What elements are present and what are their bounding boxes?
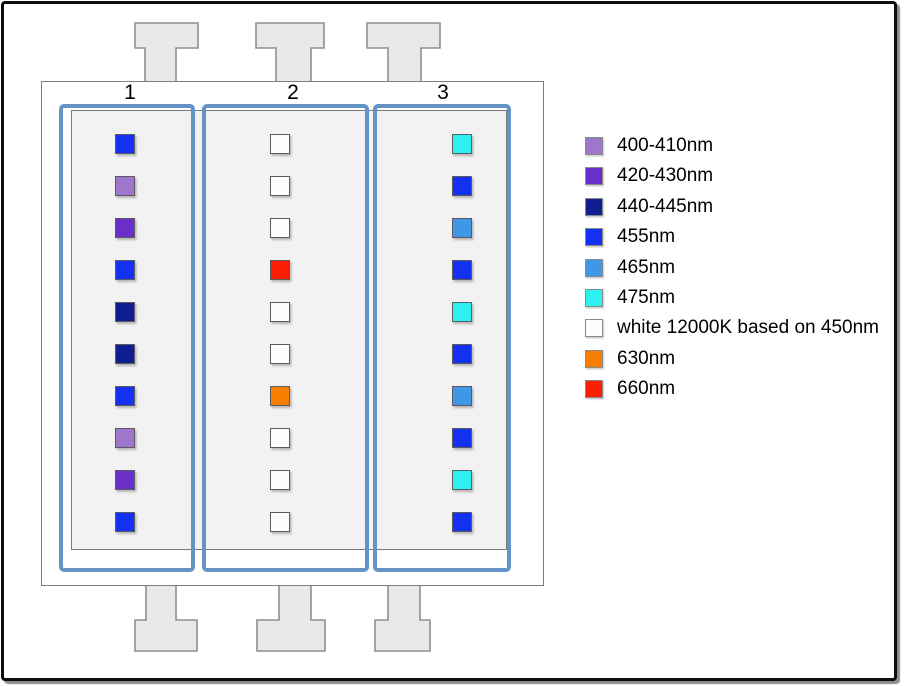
- legend-label: 420-430nm: [617, 165, 713, 187]
- mounting-tab-bottom-2: [257, 582, 325, 651]
- legend-swatch: [585, 228, 603, 246]
- legend-item: 465nm: [585, 259, 879, 277]
- legend-label: 465nm: [617, 257, 675, 279]
- legend-swatch: [585, 289, 603, 307]
- legend-swatch: [585, 167, 603, 185]
- legend-swatch: [585, 380, 603, 398]
- legend-item: 475nm: [585, 289, 879, 307]
- legend-label: 400-410nm: [617, 135, 713, 157]
- diagram-canvas: 1 2 3 400-410nm420-430nm440-445nm455nm46…: [1, 1, 897, 681]
- led-square-400-410nm: [115, 176, 135, 196]
- legend-label: 630nm: [617, 348, 675, 370]
- legend-label: 440-445nm: [617, 196, 713, 218]
- legend-item: 420-430nm: [585, 167, 879, 185]
- led-square-455nm: [452, 428, 472, 448]
- legend-swatch: [585, 350, 603, 368]
- led-square-465nm: [452, 386, 472, 406]
- legend-swatch: [585, 198, 603, 216]
- led-square-455nm: [452, 260, 472, 280]
- led-square-white: [270, 302, 290, 322]
- led-square-475nm: [452, 302, 472, 322]
- legend-item: 630nm: [585, 350, 879, 368]
- led-square-465nm: [452, 218, 472, 238]
- legend-label: 660nm: [617, 378, 675, 400]
- legend-swatch: [585, 319, 603, 337]
- led-square-455nm: [452, 344, 472, 364]
- led-square-white: [270, 134, 290, 154]
- led-square-455nm: [452, 176, 472, 196]
- mounting-tab-top-2: [256, 23, 324, 85]
- led-square-white: [270, 218, 290, 238]
- mounting-tab-bottom-1: [135, 582, 197, 651]
- led-square-455nm: [115, 512, 135, 532]
- mounting-tab-top-3: [367, 23, 440, 85]
- legend-swatch: [585, 259, 603, 277]
- legend-item: white 12000K based on 450nm: [585, 319, 879, 337]
- led-square-475nm: [452, 134, 472, 154]
- led-square-white: [270, 344, 290, 364]
- legend-item: 455nm: [585, 228, 879, 246]
- led-square-475nm: [452, 470, 472, 490]
- legend: 400-410nm420-430nm440-445nm455nm465nm475…: [585, 137, 879, 411]
- channel-3-led-column: [452, 82, 472, 585]
- legend-item: 660nm: [585, 380, 879, 398]
- led-square-420-430nm: [115, 470, 135, 490]
- legend-label: white 12000K based on 450nm: [617, 317, 879, 339]
- led-square-420-430nm: [115, 218, 135, 238]
- led-square-white: [270, 512, 290, 532]
- fixture-frame: 1 2 3: [41, 81, 544, 586]
- channel-1-led-column: [115, 82, 135, 585]
- legend-swatch: [585, 137, 603, 155]
- led-square-630nm: [270, 386, 290, 406]
- legend-item: 440-445nm: [585, 198, 879, 216]
- led-square-440-445nm: [115, 302, 135, 322]
- led-square-660nm: [270, 260, 290, 280]
- channel-2-led-column: [270, 82, 290, 585]
- led-square-white: [270, 428, 290, 448]
- mounting-tab-bottom-3: [375, 582, 430, 651]
- legend-label: 475nm: [617, 287, 675, 309]
- mounting-tab-top-1: [135, 23, 198, 85]
- led-square-455nm: [452, 512, 472, 532]
- led-square-white: [270, 470, 290, 490]
- channel-3-outline: [373, 104, 511, 572]
- legend-label: 455nm: [617, 226, 675, 248]
- legend-item: 400-410nm: [585, 137, 879, 155]
- led-square-400-410nm: [115, 428, 135, 448]
- led-square-455nm: [115, 134, 135, 154]
- led-square-455nm: [115, 260, 135, 280]
- led-square-440-445nm: [115, 344, 135, 364]
- led-square-white: [270, 176, 290, 196]
- led-square-455nm: [115, 386, 135, 406]
